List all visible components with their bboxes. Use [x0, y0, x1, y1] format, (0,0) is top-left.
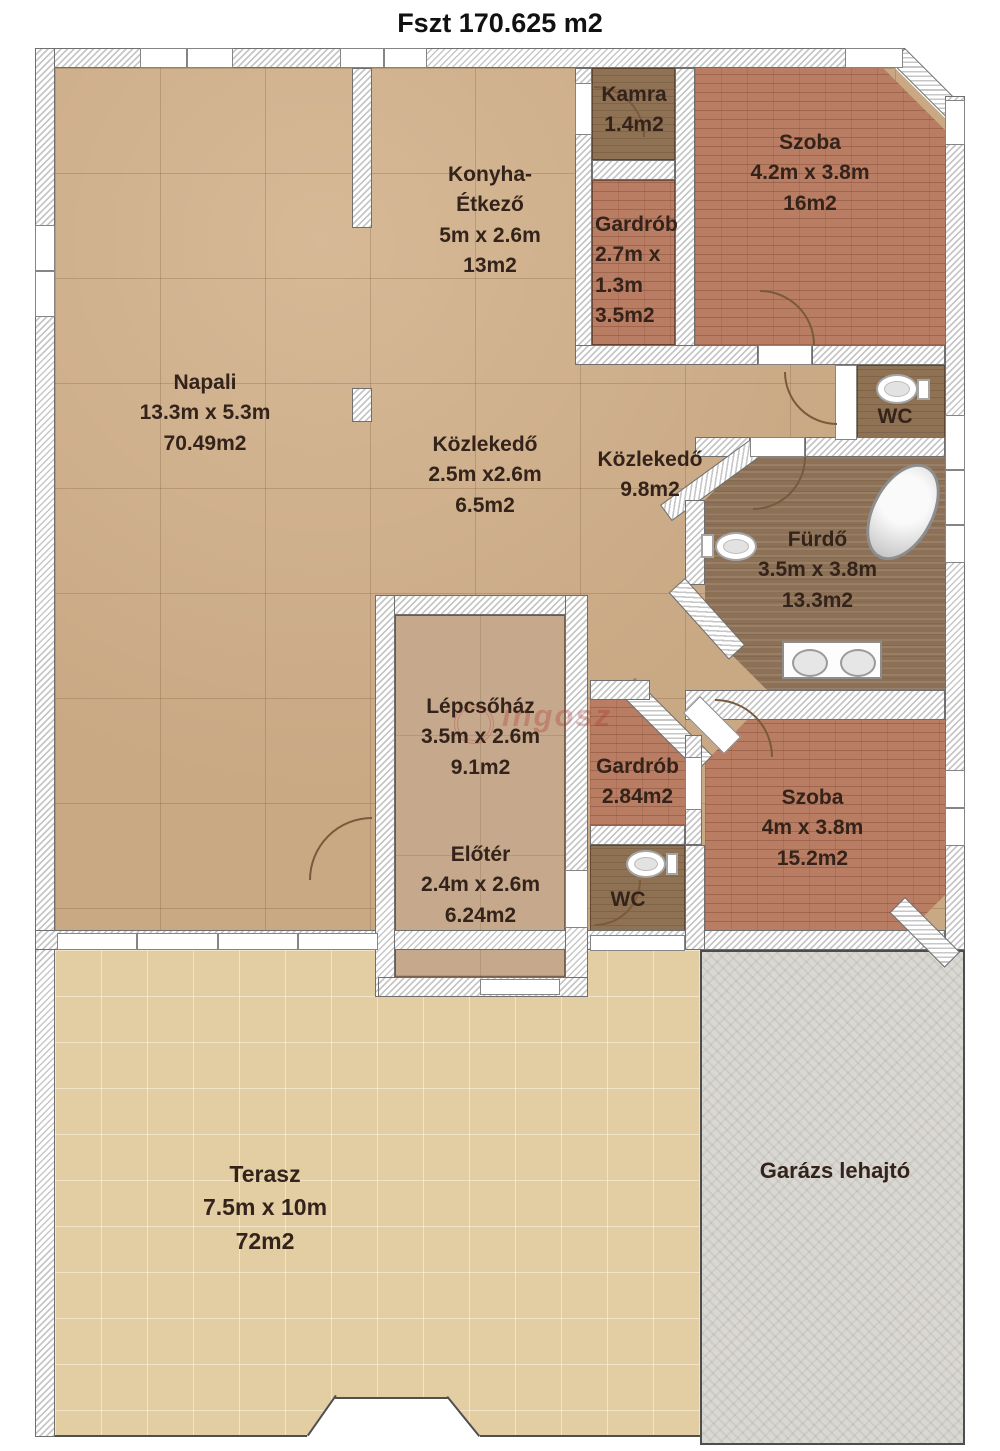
door-arc-napali [310, 818, 372, 880]
floor-plan-page: Fszt 170.625 m2 [0, 0, 1000, 1451]
label-wc-top: WC [855, 402, 935, 432]
label-napali: Napali13.3m x 5.3m70.49m2 [55, 368, 355, 459]
label-eloter: Előtér2.4m x 2.6m6.24m2 [378, 840, 583, 931]
label-kamra: Kamra1.4m2 [578, 80, 690, 141]
door-arc-corridor [785, 372, 837, 424]
label-kozlekedo-2: Közlekedő9.8m2 [555, 445, 745, 506]
label-szoba-bottom: Szoba4m x 3.8m15.2m2 [705, 783, 920, 874]
label-garazs: Garázs lehajtó [715, 1155, 955, 1187]
label-gardrob-top: Gardrób2.7m x 1.3m3.5m2 [595, 210, 695, 332]
toilet-icon-wc-top [876, 374, 918, 404]
door-arc-furdo [753, 457, 805, 509]
label-lepcsohaz: Lépcsőház3.5m x 2.6m9.1m2 [378, 692, 583, 783]
door-arc-szoba-bottom [715, 700, 772, 757]
label-gardrob-bottom: Gardrób2.84m2 [585, 752, 690, 813]
double-sink-icon [782, 641, 882, 679]
label-konyha: Konyha-Étkező 5m x 2.6m13m2 [390, 160, 590, 282]
toilet-icon-wc-bottom [626, 850, 666, 878]
label-szoba-top: Szoba4.2m x 3.8m16m2 [700, 128, 920, 219]
door-arc-szoba-top [760, 291, 814, 345]
label-furdo: Fürdő3.5m x 3.8m13.3m2 [710, 525, 925, 616]
toilet-tank-wc-bottom [666, 853, 678, 875]
label-wc-bottom: WC [588, 885, 668, 915]
label-terasz: Terasz7.5m x 10m72m2 [110, 1158, 420, 1258]
toilet-tank-wc-top [917, 379, 930, 400]
